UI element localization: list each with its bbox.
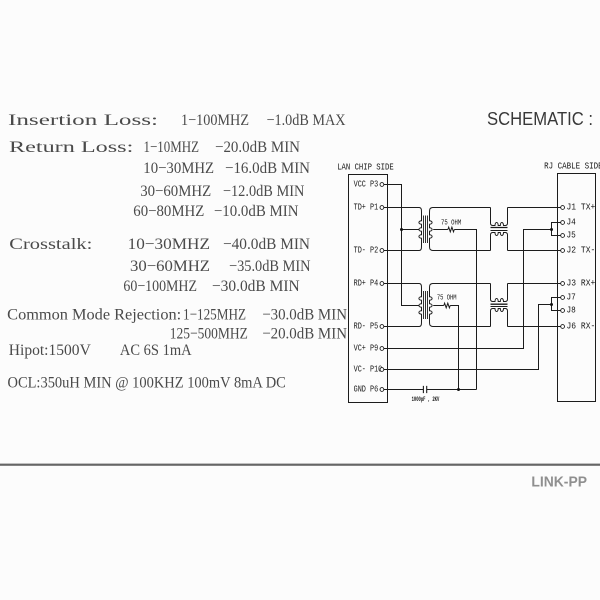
svg-text:−16.0dB MIN: −16.0dB MIN xyxy=(225,160,310,177)
svg-text:RJ CABLE SIDE: RJ CABLE SIDE xyxy=(544,161,600,172)
svg-text:60−80MHZ: 60−80MHZ xyxy=(133,203,204,220)
svg-text:VC+ P9: VC+ P9 xyxy=(354,342,379,353)
svg-text:Hipot:1500V: Hipot:1500V xyxy=(9,342,91,359)
svg-text:TD+ P1: TD+ P1 xyxy=(354,201,379,212)
svg-text:−30.0dB MIN: −30.0dB MIN xyxy=(262,306,347,323)
svg-text:RD+ P4: RD+ P4 xyxy=(354,277,379,288)
svg-text:75 OHM: 75 OHM xyxy=(437,294,457,302)
svg-text:TD- P2: TD- P2 xyxy=(354,244,379,255)
svg-text:−1.0dB MAX: −1.0dB MAX xyxy=(267,112,346,129)
svg-text:30−60MHZ: 30−60MHZ xyxy=(130,258,210,275)
svg-text:1−125MHZ: 1−125MHZ xyxy=(183,306,246,323)
svg-text:VCC P3: VCC P3 xyxy=(354,178,379,189)
svg-text:J8: J8 xyxy=(567,304,576,315)
svg-text:75 OHM: 75 OHM xyxy=(441,219,461,227)
svg-text:J5: J5 xyxy=(567,229,576,240)
svg-text:1−10MHZ: 1−10MHZ xyxy=(144,139,200,156)
svg-text:J6 RX-: J6 RX- xyxy=(567,320,596,331)
svg-text:30−60MHZ: 30−60MHZ xyxy=(140,183,211,200)
svg-text:−20.0dB MIN: −20.0dB MIN xyxy=(262,325,347,342)
svg-text:J2 TX-: J2 TX- xyxy=(567,244,596,255)
svg-text:VC- P10: VC- P10 xyxy=(354,363,383,374)
svg-text:−20.0dB MIN: −20.0dB MIN xyxy=(215,139,300,156)
svg-text:Return Loss:: Return Loss: xyxy=(9,139,133,156)
svg-text:GND P6: GND P6 xyxy=(354,383,379,394)
svg-text:LAN CHIP SIDE: LAN CHIP SIDE xyxy=(337,161,394,172)
svg-text:10−30MHZ: 10−30MHZ xyxy=(128,236,210,253)
svg-text:SCHEMATIC :: SCHEMATIC : xyxy=(487,108,593,129)
svg-text:J7: J7 xyxy=(567,291,576,302)
svg-text:−30.0dB MIN: −30.0dB MIN xyxy=(212,278,300,295)
svg-text:−40.0dB MIN: −40.0dB MIN xyxy=(223,236,310,253)
svg-text:Crosstalk:: Crosstalk: xyxy=(9,236,92,253)
svg-text:AC 6S 1mA: AC 6S 1mA xyxy=(120,342,192,359)
svg-text:−35.0dB MIN: −35.0dB MIN xyxy=(229,258,311,275)
svg-text:RD- P5: RD- P5 xyxy=(354,320,379,331)
svg-text:−10.0dB MIN: −10.0dB MIN xyxy=(214,203,299,220)
svg-text:J1 TX+: J1 TX+ xyxy=(567,201,596,212)
svg-text:60−100MHZ: 60−100MHZ xyxy=(123,278,197,295)
svg-text:Common Mode Rejection:: Common Mode Rejection: xyxy=(7,306,181,323)
svg-text:LINK-PP: LINK-PP xyxy=(531,475,587,491)
svg-text:Insertion Loss:: Insertion Loss: xyxy=(8,112,158,129)
svg-text:125−500MHZ: 125−500MHZ xyxy=(170,325,248,342)
svg-text:J3 RX+: J3 RX+ xyxy=(567,277,596,288)
svg-text:−12.0dB MIN: −12.0dB MIN xyxy=(223,183,305,200)
svg-text:1−100MHZ: 1−100MHZ xyxy=(181,112,249,129)
svg-text:J4: J4 xyxy=(567,216,577,227)
svg-text:OCL:350uH MIN @ 100KHZ 100mV 8: OCL:350uH MIN @ 100KHZ 100mV 8mA DC xyxy=(8,375,286,392)
svg-text:1000pF , 2KV: 1000pF , 2KV xyxy=(412,396,440,403)
svg-text:10−30MHZ: 10−30MHZ xyxy=(143,160,214,177)
